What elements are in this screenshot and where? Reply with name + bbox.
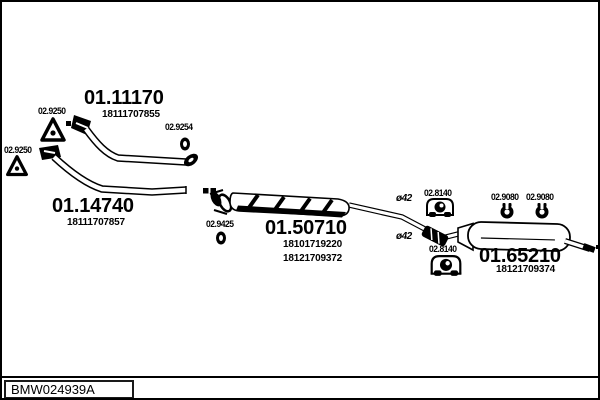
seal-ring-icon [216, 232, 226, 245]
part-number-rear-silencer: 01.65210 [479, 246, 561, 266]
exhaust-parts-diagram: 01.11170 18111707855 01.14740 1811170785… [0, 0, 600, 400]
fitting-label-hanger-upper: 02.8140 [424, 189, 452, 198]
part-number-front-pipe-upper: 01.11170 [84, 88, 164, 108]
oem-number-front-pipe-upper: 18111707855 [102, 110, 160, 120]
front-pipe-lower-drawing [39, 145, 216, 194]
oem-number-centre-silencer-1: 18101719220 [283, 240, 342, 250]
fitting-label-seal-ring-centre: 02.9425 [206, 220, 234, 229]
triangle-gasket-icon [42, 119, 64, 140]
oem-number-rear-silencer: 18121709374 [496, 265, 555, 275]
rubber-hanger-icon [426, 199, 454, 217]
pipe-diameter-annotation-lower: ø42 [396, 232, 412, 242]
footer-divider-line [2, 376, 600, 378]
diagram-reference-code: BMW024939A [4, 380, 134, 399]
fitting-label-seal-ring-front: 02.9254 [165, 123, 193, 132]
clamp-ring-icon [501, 203, 514, 219]
fitting-label-clamp-left: 02.9080 [491, 193, 519, 202]
pipe-diameter-annotation-upper: ø42 [396, 194, 412, 204]
fitting-label-clamp-right: 02.9080 [526, 193, 554, 202]
rubber-hanger-icon [431, 256, 462, 276]
fitting-label-gasket-left: 02.9250 [4, 146, 32, 155]
part-number-centre-silencer: 01.50710 [265, 218, 347, 238]
part-number-front-pipe-lower: 01.14740 [52, 196, 134, 216]
oem-number-centre-silencer-2: 18121709372 [283, 254, 342, 264]
clamp-ring-icon [536, 203, 549, 219]
fitting-label-gasket-top: 02.9250 [38, 107, 66, 116]
fitting-label-hanger-lower: 02.8140 [429, 245, 457, 254]
seal-ring-icon [180, 138, 190, 151]
oem-number-front-pipe-lower: 18111707857 [67, 218, 125, 228]
triangle-gasket-icon [8, 157, 27, 175]
